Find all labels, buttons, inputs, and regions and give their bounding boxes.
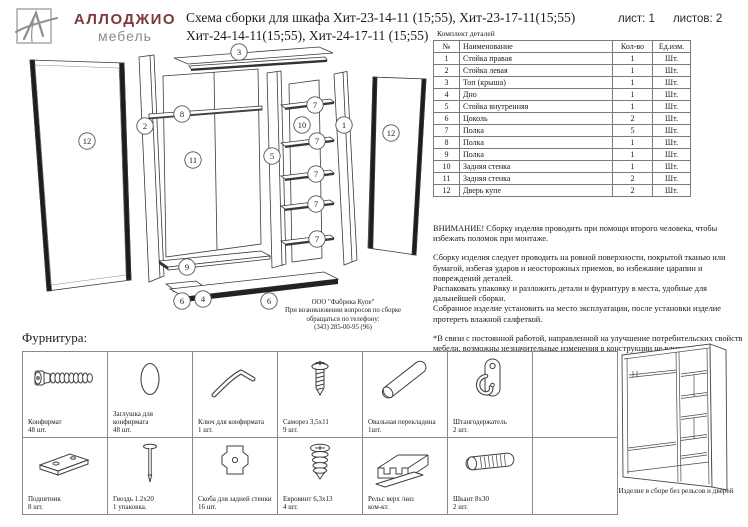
table-cell: Стойка левая — [460, 65, 613, 77]
table-cell: Шт. — [653, 101, 691, 113]
euro-screw-icon — [285, 440, 355, 486]
part-callout-number: 7 — [313, 100, 317, 110]
part-callout-number: 7 — [314, 199, 318, 209]
sheet-info: лист: 1 листов: 2 — [618, 13, 722, 25]
table-cell: Шт. — [653, 125, 691, 137]
table-cell: Шт. — [653, 65, 691, 77]
manufacturer-phone: (343) 285-00-95 (96) — [250, 324, 436, 332]
table-column-header: Наименование — [460, 41, 613, 53]
table-row: 6Цоколь2Шт. — [434, 113, 691, 125]
oval-rod-icon — [370, 354, 440, 404]
table-cell: 3 — [434, 77, 460, 89]
hardware-item-name: Евровинт 6,3х13 — [283, 495, 332, 503]
part-callout-number: 7 — [314, 169, 318, 179]
table-column-header: № — [434, 41, 460, 53]
hardware-item-qty: 2 шт. — [453, 426, 468, 434]
self-tapping-screw-icon — [285, 354, 355, 404]
table-row: 3Топ (крыша)1Шт. — [434, 77, 691, 89]
table-cell: 12 — [434, 185, 460, 197]
part-callout-number: 3 — [237, 47, 241, 57]
table-cell: 5 — [613, 125, 653, 137]
table-cell: Полка — [460, 125, 613, 137]
part-callout-number: 6 — [180, 296, 184, 306]
parts-table: №НаименованиеКол-воЕд.изм. 1Стойка права… — [433, 40, 691, 197]
table-cell: 9 — [434, 149, 460, 161]
table-cell: Полка — [460, 149, 613, 161]
table-cell: 5 — [434, 101, 460, 113]
hardware-item-name: Конфирмат — [28, 418, 62, 426]
table-cell: 2 — [613, 173, 653, 185]
hardware-item-name: Подпятник — [28, 495, 61, 503]
table-cell: 1 — [613, 77, 653, 89]
table-cell: 1 — [613, 89, 653, 101]
table-cell: Шт. — [653, 185, 691, 197]
manufacturer-note-line: При возникновении вопросов по сборке — [250, 307, 436, 315]
parts-table-section: Комплект деталей №НаименованиеКол-воЕд.и… — [433, 29, 691, 197]
hardware-item-qty: 8 шт. — [28, 503, 43, 511]
table-cell: Полка — [460, 137, 613, 149]
table-cell: Стойка внутренняя — [460, 101, 613, 113]
table-row: 8Полка1Шт. — [434, 137, 691, 149]
part-callout-number: 8 — [180, 109, 184, 119]
table-cell: 1 — [613, 149, 653, 161]
exploded-diagram: 3122811510777771129646 — [18, 40, 430, 334]
table-cell: 7 — [434, 125, 460, 137]
hardware-item-name: Ключ для конфирмата — [198, 418, 264, 426]
hardware-item-qty: 4 шт. — [283, 503, 298, 511]
table-cell: 1 — [434, 53, 460, 65]
hardware-cell: Евровинт 6,3х13 4 шт. — [278, 438, 363, 515]
table-cell: 10 — [434, 161, 460, 173]
hardware-cell: Ключ для конфирмата 1 шт. — [193, 352, 278, 438]
hardware-cell: Саморез 3,5х11 9 шт. — [278, 352, 363, 438]
rail-icon — [370, 440, 440, 490]
back-panel-wide — [163, 69, 261, 257]
hardware-grid: Конфирмат 48 шт. Заглушка для конфирмата… — [22, 351, 618, 515]
part-callout-number: 1 — [342, 120, 346, 130]
part-callout-number: 12 — [387, 128, 396, 138]
hardware-cell: Скоба для задней стенки 16 шт. — [193, 438, 278, 515]
table-cell: Шт. — [653, 77, 691, 89]
rod-holder-icon — [455, 354, 525, 404]
brand-name: АЛЛОДЖИО — [58, 11, 192, 28]
assembled-product-drawing — [606, 341, 746, 491]
hardware-item-name: Шкант 8х30 — [453, 495, 489, 503]
hardware-item-qty: 48 шт. — [113, 426, 131, 434]
sliding-door-left — [30, 60, 131, 291]
parts-table-caption: Комплект деталей — [437, 29, 691, 38]
cap-plug-icon — [115, 354, 185, 404]
hardware-item-qty: 2 шт. — [453, 503, 468, 511]
table-row: 9Полка1Шт. — [434, 149, 691, 161]
hardware-cell: Заглушка для конфирмата 48 шт. — [108, 352, 193, 438]
hardware-item-qty: 1шт. — [368, 426, 381, 434]
table-cell: Шт. — [653, 149, 691, 161]
part-callout-number: 5 — [270, 151, 274, 161]
sheets-total: листов: 2 — [673, 13, 722, 25]
table-cell: Дверь купе — [460, 185, 613, 197]
part-callout-number: 9 — [185, 262, 189, 272]
confirmat-screw-icon — [30, 354, 100, 404]
hardware-item-qty: 48 шт. — [28, 426, 46, 434]
sliding-door-right — [368, 77, 426, 255]
table-cell: 2 — [613, 113, 653, 125]
table-cell: Шт. — [653, 173, 691, 185]
warning-text: ВНИМАНИЕ! Сборку изделия проводить при п… — [433, 224, 747, 244]
hardware-cell: Конфирмат 48 шт. — [23, 352, 108, 438]
table-cell: Задняя стенка — [460, 173, 613, 185]
hardware-item-name: Скоба для задней стенки — [198, 495, 272, 503]
hardware-item-name: Овальная перекладина — [368, 418, 436, 426]
table-cell: Топ (крыша) — [460, 77, 613, 89]
hardware-cell: Гвоздь 1.2х20 1 упаковка. — [108, 438, 193, 515]
hex-key-icon — [200, 354, 270, 404]
hardware-item-qty: 9 шт. — [283, 426, 298, 434]
table-header-row: №НаименованиеКол-воЕд.изм. — [434, 41, 691, 53]
table-cell: 11 — [434, 173, 460, 185]
hardware-item-qty: 1 шт. — [198, 426, 213, 434]
table-cell: Шт. — [653, 161, 691, 173]
table-row: 12Дверь купе2Шт. — [434, 185, 691, 197]
table-cell: 4 — [434, 89, 460, 101]
manufacturer-note-line: обращаться по телефону: — [250, 316, 436, 324]
table-row: 7Полка5Шт. — [434, 125, 691, 137]
hardware-cell: Рельс верх /низ ком-кт. — [363, 438, 448, 515]
side-post-left — [139, 55, 164, 282]
table-cell: 2 — [613, 185, 653, 197]
table-cell: 1 — [613, 101, 653, 113]
inner-post — [267, 71, 286, 268]
table-row: 2Стойка левая1Шт. — [434, 65, 691, 77]
parts-table-body: 1Стойка правая1Шт.2Стойка левая1Шт.3Топ … — [434, 53, 691, 197]
side-post-right — [334, 72, 357, 266]
hardware-item-name: Заглушка для конфирмата — [113, 410, 153, 426]
part-callout-number: 12 — [83, 136, 92, 146]
hardware-cell: Подпятник 8 шт. — [23, 438, 108, 515]
top-panel — [174, 47, 333, 71]
hardware-section-title: Фурнитура: — [22, 330, 87, 346]
table-column-header: Ед.изм. — [653, 41, 691, 53]
hardware-item-name: Рельс верх /низ — [368, 495, 414, 503]
table-row: 5Стойка внутренняя1Шт. — [434, 101, 691, 113]
table-cell: Дно — [460, 89, 613, 101]
manufacturer-name: ООО "Фабрика Купе" — [250, 299, 436, 307]
table-cell: 1 — [613, 137, 653, 149]
hardware-cell: Овальная перекладина 1шт. — [363, 352, 448, 438]
table-cell: Задняя стенка — [460, 161, 613, 173]
assembly-instructions: Сборку изделия следует проводить на ровн… — [433, 253, 747, 324]
table-row: 11Задняя стенка2Шт. — [434, 173, 691, 185]
hardware-item-name: Штангодержатель — [453, 418, 507, 426]
table-cell: Цоколь — [460, 113, 613, 125]
hardware-item-qty: 1 упаковка. — [113, 503, 147, 511]
table-cell: Шт. — [653, 89, 691, 101]
foot-plate-icon — [30, 440, 100, 486]
dowel-icon — [455, 440, 525, 486]
back-panel-clip-icon — [200, 440, 270, 486]
table-column-header: Кол-во — [613, 41, 653, 53]
table-row: 4Дно1Шт. — [434, 89, 691, 101]
part-callout-number: 11 — [189, 155, 197, 165]
document-title-line1: Схема сборки для шкафа Хит-23-14-11 (15;… — [186, 9, 596, 27]
table-cell: 1 — [613, 53, 653, 65]
hardware-item-qty: ком-кт. — [368, 503, 389, 511]
table-cell: 1 — [613, 65, 653, 77]
table-row: 10Задняя стенка1Шт. — [434, 161, 691, 173]
table-cell: 6 — [434, 113, 460, 125]
table-cell: 2 — [434, 65, 460, 77]
part-callout-number: 7 — [315, 136, 319, 146]
table-cell: 1 — [613, 161, 653, 173]
hardware-item-qty: 16 шт. — [198, 503, 216, 511]
table-cell: Шт. — [653, 137, 691, 149]
table-row: 1Стойка правая1Шт. — [434, 53, 691, 65]
part-callout-number: 2 — [143, 121, 147, 131]
hardware-cell: Шкант 8х30 2 шт. — [448, 438, 533, 515]
hardware-cell: Штангодержатель 2 шт. — [448, 352, 533, 438]
bottom-panel-and-plinths — [166, 272, 338, 302]
assembled-product-caption: Изделие в сборе без рельсов и дверей — [604, 487, 748, 495]
hardware-item-name: Гвоздь 1.2х20 — [113, 495, 154, 503]
part-callout-number: 7 — [315, 234, 319, 244]
hardware-item-name: Саморез 3,5х11 — [283, 418, 329, 426]
part-callout-number: 10 — [298, 120, 307, 130]
sheet-number: лист: 1 — [618, 13, 655, 25]
table-cell: Стойка правая — [460, 53, 613, 65]
table-cell: Шт. — [653, 113, 691, 125]
page: АЛЛОДЖИО мебель Схема сборки для шкафа Х… — [0, 0, 748, 527]
nail-icon — [115, 440, 185, 486]
table-cell: Шт. — [653, 53, 691, 65]
manufacturer-info: ООО "Фабрика Купе" При возникновении воп… — [250, 299, 436, 333]
table-cell: 8 — [434, 137, 460, 149]
